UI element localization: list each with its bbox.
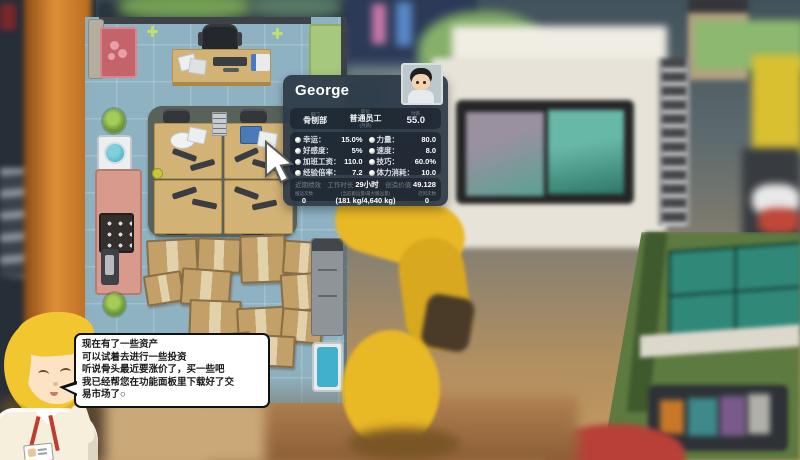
ceiling-light <box>276 28 279 39</box>
bg-window-blue <box>396 2 412 46</box>
employee-name: George <box>295 82 349 99</box>
bg-display-purple <box>720 396 746 436</box>
bg-bottom-tan <box>90 400 265 460</box>
office-chair <box>163 109 190 124</box>
late-count: 迟到次数0 <box>418 191 436 205</box>
stamina-cost-icon <box>369 170 375 176</box>
bubble-line: 可以试着去进行一些投资 <box>82 352 262 365</box>
boss-desk <box>172 49 271 86</box>
bubble-line: 易市场了○ <box>82 389 262 402</box>
bubble-line: 我已经帮您在功能面板里下载好了交 <box>82 377 262 390</box>
excavator-shadow <box>348 428 460 460</box>
stat-row-speed: 速度：8.0 <box>369 145 437 156</box>
stat-row-luck: 幸运：15.0% <box>295 134 363 145</box>
carry-count: 搬运次数0 <box>295 191 313 205</box>
stat-row-favor: 好感度：5% <box>295 145 363 156</box>
paper-tray <box>212 112 227 136</box>
office-chair <box>240 109 267 124</box>
bubble-line: 现在有了一些资产 <box>82 339 262 352</box>
game-screen: George 部门 骨刨部 职位 普通员工 (月薪) 时薪 55.0 幸 <box>0 0 800 460</box>
red-rug <box>100 27 137 78</box>
strength-icon <box>369 137 375 143</box>
speed-icon <box>369 148 375 154</box>
bg-trees-top2 <box>248 0 343 18</box>
office-right-wall-top <box>341 17 347 77</box>
wage-value: 55.0 <box>407 116 426 126</box>
bg-window-pink <box>372 4 386 44</box>
mouse-cursor-icon <box>262 140 296 186</box>
employee-info-panel: George 部门 骨刨部 职位 普通员工 (月薪) 时薪 55.0 幸 <box>283 75 448 206</box>
bubble-tail-inner <box>65 384 78 394</box>
bg-red-car <box>758 208 800 234</box>
stat-row-exp-rate: 经验倍率：7.2 <box>295 167 363 178</box>
cardboard-box <box>143 270 185 307</box>
carry-weight: (当前搬运量/最大搬运量)(181 kg/4,640 kg) <box>335 191 395 205</box>
advisor-speech-bubble[interactable]: 现在有了一些资产 可以试着去进行一些投资 听说骨头最近要涨价了，买一些吧 我已经… <box>74 333 270 408</box>
sink <box>312 342 343 392</box>
income: 创造价值 49.128 <box>385 180 436 190</box>
department-value: 骨刨部 <box>303 117 327 125</box>
department-cell: 部门 骨刨部 <box>290 108 340 129</box>
bg-red-corner <box>0 4 16 30</box>
advisor-id-badge <box>23 443 54 460</box>
office-top-wall <box>99 17 311 24</box>
excavator-joint <box>420 292 477 354</box>
skill-icon <box>369 159 375 165</box>
bubble-line: 听说骨头最近要涨价了，买一些吧 <box>82 364 262 377</box>
stat-row-stamina-cost: 体力消耗：10.0 <box>369 167 437 178</box>
stat-row-skill: 技巧：60.0% <box>369 156 437 167</box>
desk-item-dot <box>152 168 163 179</box>
potted-plant <box>103 109 125 133</box>
advisor-nose <box>53 382 58 386</box>
employee-portrait <box>401 63 443 105</box>
bg-display-light <box>748 394 770 434</box>
bg-yellow-building <box>752 55 800 155</box>
performance-block: 近期绩效 工作时长 29小时 创造价值 49.128 搬运次数0 (当前搬运量/… <box>290 178 441 201</box>
portrait-face <box>412 74 430 90</box>
ceiling-light <box>151 26 154 37</box>
bottle-rack <box>99 213 134 253</box>
role-sub-label: (月薪) <box>359 123 371 128</box>
gray-cabinet <box>311 238 344 336</box>
bg-big-window-glass-left <box>466 112 544 196</box>
performance-title: 近期绩效 <box>295 182 321 190</box>
work-hours: 工作时长 29小时 <box>328 180 379 190</box>
bg-big-window-glass-right <box>548 110 624 194</box>
stats-block: 幸运：15.0% 力量：80.0 好感度：5% 速度：8.0 加班工资：110.… <box>290 132 441 175</box>
bg-display-teal <box>688 398 718 436</box>
portrait-shirt <box>408 90 434 103</box>
potted-plant <box>104 293 125 316</box>
role-value: 普通员工 <box>349 115 381 123</box>
wage-cell: 时薪 55.0 <box>391 108 441 129</box>
water-cooler <box>97 135 132 172</box>
stat-row-overtime-pay: 加班工资：110.0 <box>295 156 363 167</box>
counter-machine <box>101 249 119 285</box>
bg-ladder <box>658 58 690 226</box>
employee-header-strip: 部门 骨刨部 职位 普通员工 (月薪) 时薪 55.0 <box>290 108 441 129</box>
bg-display-orange <box>660 400 684 434</box>
role-cell: 职位 普通员工 (月薪) <box>340 108 390 129</box>
stat-row-strength: 力量：80.0 <box>369 134 437 145</box>
